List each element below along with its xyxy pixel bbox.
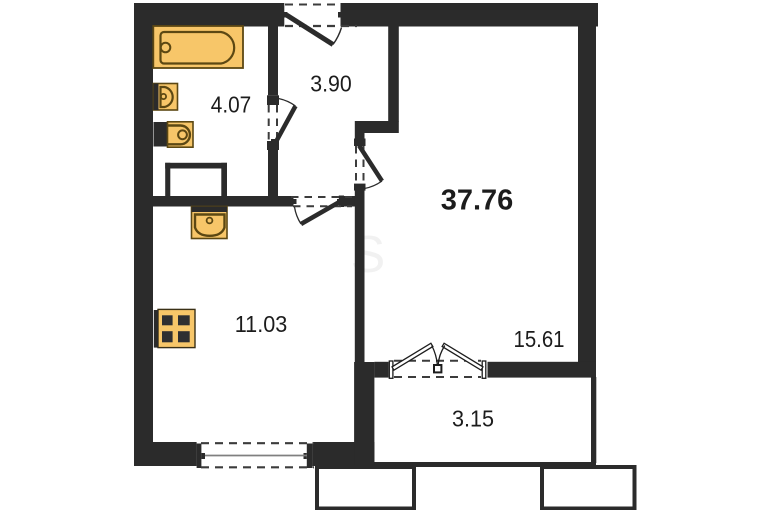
svg-text:37.76: 37.76 — [441, 185, 514, 217]
svg-text:3.15: 3.15 — [452, 406, 494, 432]
svg-text:3.90: 3.90 — [310, 71, 352, 97]
svg-text:15.61: 15.61 — [514, 326, 565, 352]
svg-text:4.07: 4.07 — [211, 92, 252, 118]
svg-text:11.03: 11.03 — [235, 311, 288, 337]
